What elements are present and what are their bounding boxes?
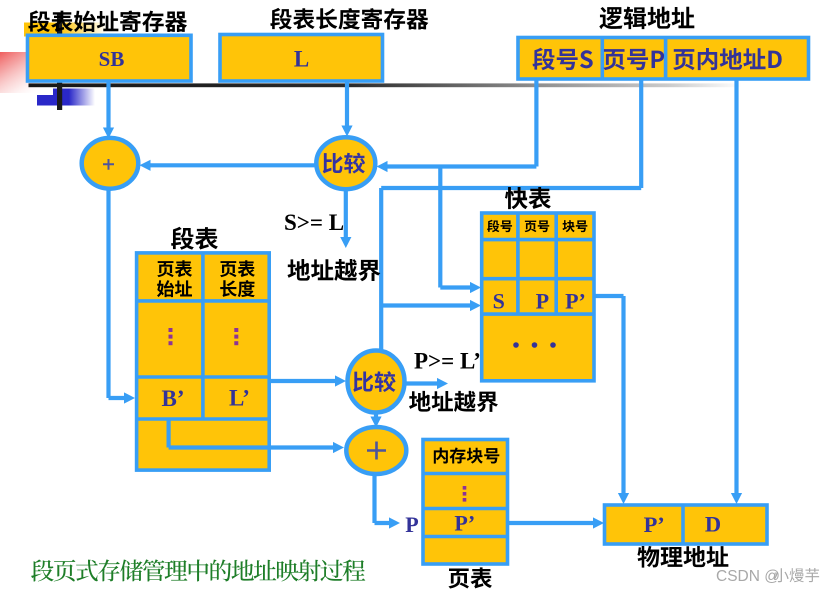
svg-text:P’: P’: [565, 288, 586, 313]
svg-text:P’: P’: [454, 511, 475, 536]
svg-text:B’: B’: [162, 386, 185, 411]
svg-text:SB: SB: [99, 47, 125, 71]
svg-text:CSDN @: CSDN @: [716, 568, 780, 585]
svg-text:S: S: [493, 288, 505, 313]
svg-text:D: D: [705, 512, 721, 537]
svg-text:S>= L: S>= L: [284, 210, 344, 235]
svg-text:L’: L’: [229, 386, 250, 411]
svg-text:P’: P’: [644, 512, 665, 537]
svg-text:P>= L’: P>= L’: [414, 349, 481, 374]
svg-text:L: L: [294, 47, 309, 72]
svg-text:P: P: [536, 288, 549, 313]
svg-text:P: P: [405, 512, 418, 537]
